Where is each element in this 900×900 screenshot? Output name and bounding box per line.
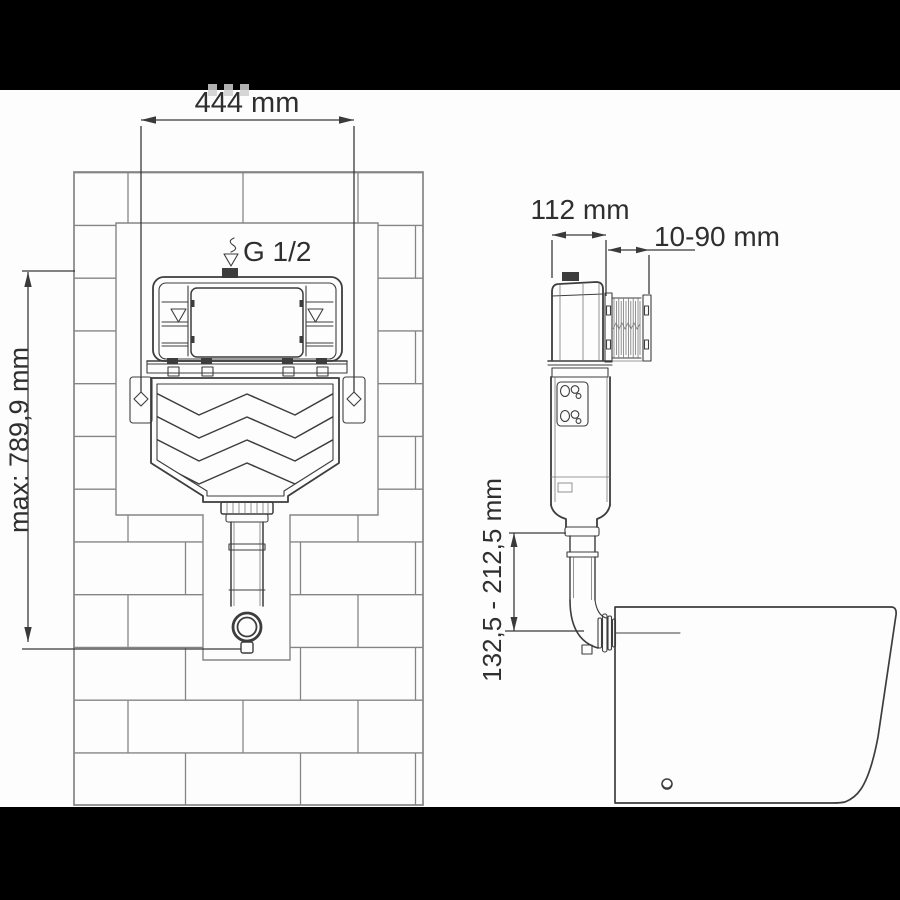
depth-dimension-label: 112 mm bbox=[530, 194, 629, 225]
wall-distance-label: 10-90 mm bbox=[654, 221, 780, 252]
height-dimension-label: max: 789,9 mm bbox=[4, 347, 34, 533]
installation-diagram: 444 mm max: 789,9 mm G 1/2 bbox=[0, 0, 900, 900]
diagram-canvas: 444 mm max: 789,9 mm G 1/2 bbox=[0, 0, 900, 900]
inlet-cap-side bbox=[562, 272, 579, 281]
width-dimension-label: 444 mm bbox=[195, 87, 300, 119]
inlet-label: G 1/2 bbox=[243, 236, 311, 267]
outlet-height-label: 132,5 - 212,5 mm bbox=[477, 478, 507, 682]
